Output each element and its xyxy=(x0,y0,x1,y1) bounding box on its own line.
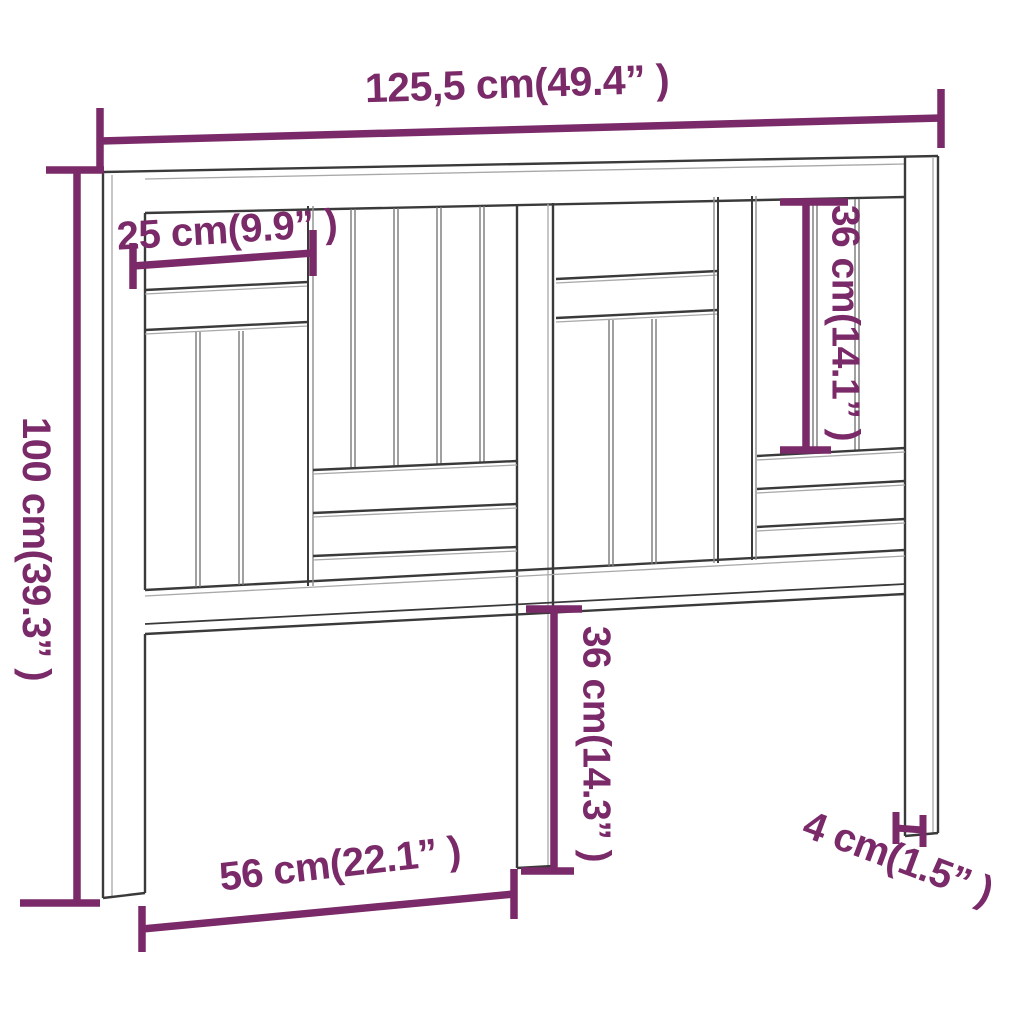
bottom-rail xyxy=(145,550,905,634)
center-post-leg xyxy=(517,203,553,868)
diagram-canvas: 125,5 cm(49.4” ) 25 cm(9.9” ) 100 cm(39.… xyxy=(0,0,1024,1024)
left-post-leg xyxy=(103,172,145,898)
right-inner-weave-column xyxy=(556,197,718,566)
dim-overall-width-label: 125,5 cm(49.4” ) xyxy=(364,59,669,110)
dim-upper-panel-height-label: 36 cm(14.1” ) xyxy=(826,205,865,441)
dim-leg-height-line xyxy=(521,609,582,871)
right-post-leg xyxy=(905,156,938,836)
left-outer-weave-column xyxy=(313,206,517,560)
dim-leg-height-label: 36 cm(14.3” ) xyxy=(577,626,616,862)
dim-overall-height-label: 100 cm(39.3” ) xyxy=(16,417,56,681)
